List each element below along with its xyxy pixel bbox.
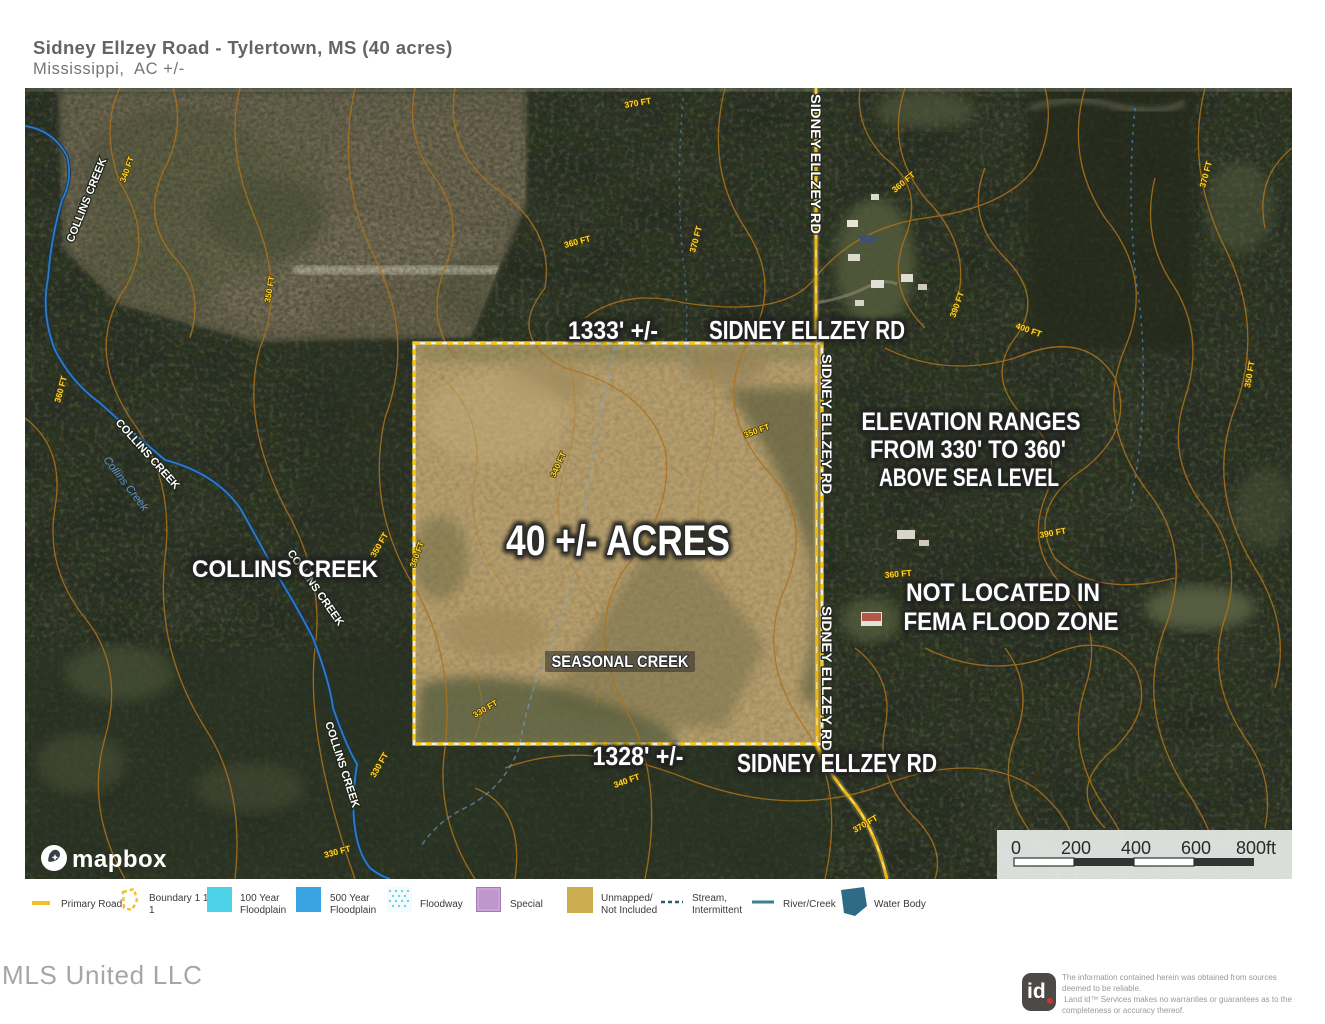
svg-text:800ft: 800ft: [1236, 838, 1276, 858]
svg-text:SIDNEY ELLZEY RD: SIDNEY ELLZEY RD: [709, 315, 905, 345]
svg-text:SEASONAL CREEK: SEASONAL CREEK: [552, 652, 690, 671]
svg-text:SIDNEY ELLZEY RD: SIDNEY ELLZEY RD: [808, 94, 824, 234]
svg-text:600: 600: [1181, 838, 1211, 858]
svg-text:40 +/- ACRES: 40 +/- ACRES: [506, 517, 730, 565]
svg-text:SIDNEY ELLZEY RD: SIDNEY ELLZEY RD: [737, 748, 937, 778]
svg-text:ELEVATION RANGES: ELEVATION RANGES: [862, 408, 1081, 436]
svg-text:SIDNEY ELLZEY RD: SIDNEY ELLZEY RD: [819, 354, 835, 494]
svg-text:FEMA FLOOD ZONE: FEMA FLOOD ZONE: [904, 608, 1119, 636]
svg-text:NOT LOCATED IN: NOT LOCATED IN: [906, 579, 1100, 607]
svg-text:0: 0: [1011, 838, 1021, 858]
svg-text:SIDNEY ELLZEY RD: SIDNEY ELLZEY RD: [819, 606, 835, 751]
svg-text:1333' +/-: 1333' +/-: [568, 317, 658, 345]
svg-text:COLLINS CREEK: COLLINS CREEK: [192, 556, 379, 583]
svg-text:ABOVE SEA LEVEL: ABOVE SEA LEVEL: [879, 464, 1059, 492]
svg-text:400: 400: [1121, 838, 1151, 858]
svg-text:200: 200: [1061, 838, 1091, 858]
svg-text:mapbox: mapbox: [72, 846, 167, 873]
svg-text:FROM 330' TO 360': FROM 330' TO 360': [870, 436, 1066, 464]
svg-text:1328' +/-: 1328' +/-: [593, 741, 684, 771]
